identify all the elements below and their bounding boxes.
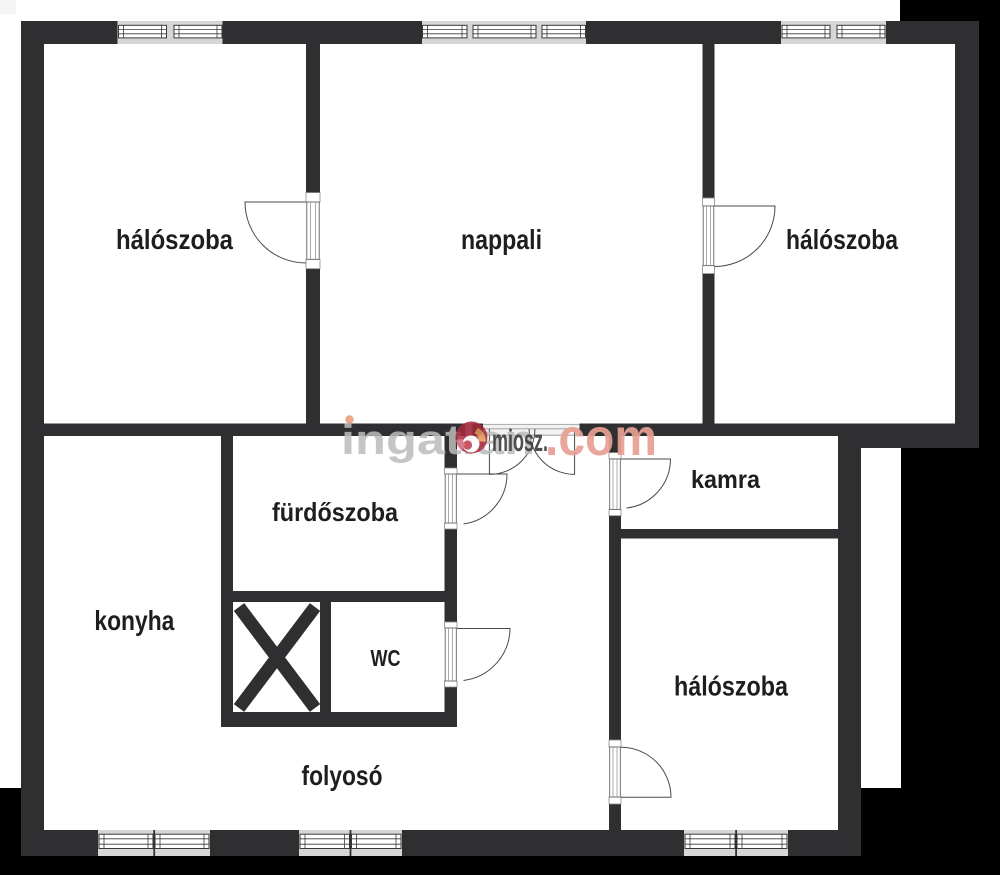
svg-text:fürdőszoba: fürdőszoba <box>272 497 398 527</box>
svg-text:hálószoba: hálószoba <box>116 224 233 255</box>
svg-text:nappali: nappali <box>461 224 542 255</box>
svg-text:folyosó: folyosó <box>302 760 383 791</box>
svg-text:.com: .com <box>545 409 657 467</box>
svg-text:hálószoba: hálószoba <box>786 224 898 255</box>
svg-text:WC: WC <box>371 645 401 671</box>
svg-text:hálószoba: hálószoba <box>674 671 788 702</box>
svg-text:konyha: konyha <box>94 605 174 636</box>
svg-text:miosz.: miosz. <box>492 423 548 458</box>
svg-text:kamra: kamra <box>691 466 761 494</box>
